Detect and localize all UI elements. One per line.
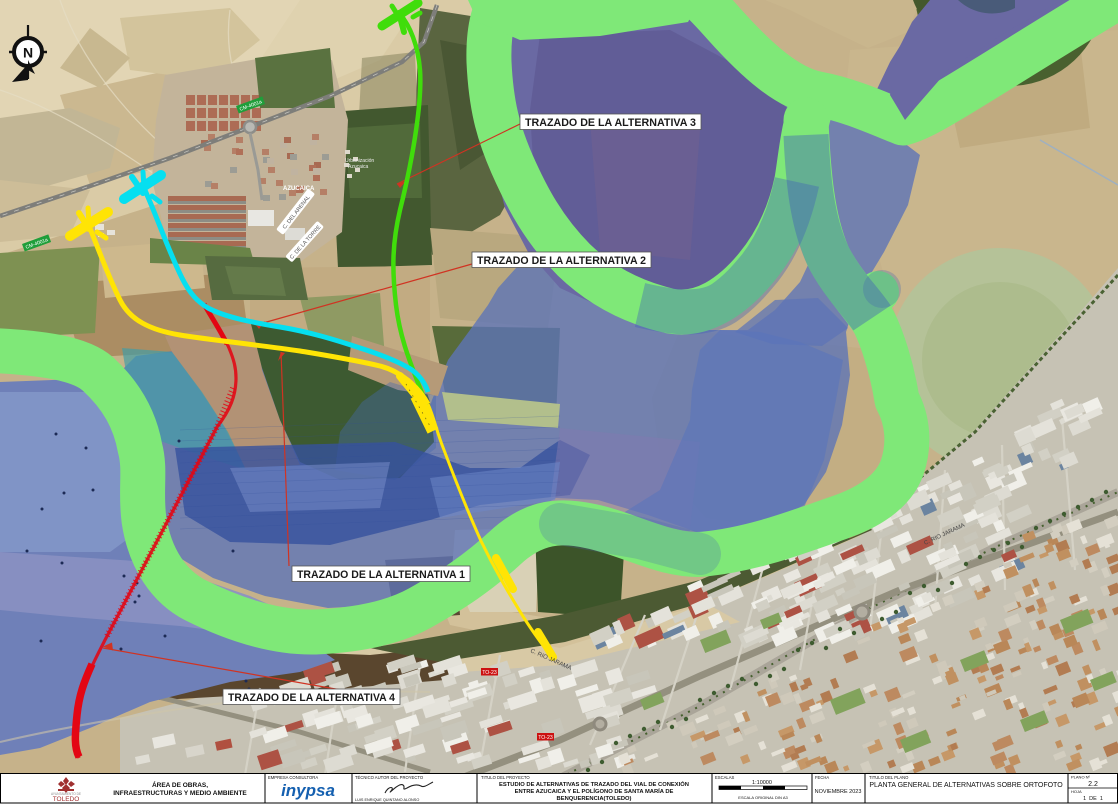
svg-text:BENQUERENCIA(TOLEDO): BENQUERENCIA(TOLEDO) — [557, 796, 632, 802]
svg-text:TITULO DEL PLANO: TITULO DEL PLANO — [869, 775, 909, 780]
svg-text:ESCALA ORIGINAL DIN A3: ESCALA ORIGINAL DIN A3 — [738, 795, 788, 800]
svg-text:PLANTA GENERAL DE ALTERNATIVAS: PLANTA GENERAL DE ALTERNATIVAS SOBRE ORT… — [869, 782, 1063, 789]
svg-text:1:10000: 1:10000 — [752, 780, 772, 786]
svg-text:TOLEDO: TOLEDO — [53, 796, 80, 803]
svg-text:FECHA: FECHA — [815, 775, 829, 780]
svg-text:TO-23: TO-23 — [482, 670, 497, 676]
svg-text:EMPRESA CONSULTORA: EMPRESA CONSULTORA — [268, 775, 318, 780]
svg-text:TRAZADO DE LA ALTERNATIVA 4: TRAZADO DE LA ALTERNATIVA 4 — [228, 692, 396, 704]
svg-text:Azucaica: Azucaica — [348, 164, 369, 170]
svg-text:inypsa: inypsa — [281, 781, 335, 800]
svg-text:TITULO DEL PROYECTO: TITULO DEL PROYECTO — [481, 775, 530, 780]
svg-text:ESCALAS: ESCALAS — [715, 775, 735, 780]
svg-text:LUIS ENRIQUE QUINTANO ALONSO: LUIS ENRIQUE QUINTANO ALONSO — [355, 798, 419, 802]
svg-text:TRAZADO DE LA ALTERNATIVA 2: TRAZADO DE LA ALTERNATIVA 2 — [477, 255, 646, 267]
svg-text:TRAZADO DE LA ALTERNATIVA 1: TRAZADO DE LA ALTERNATIVA 1 — [297, 569, 465, 581]
svg-text:ESTUDIO DE ALTERNATIVAS DE TRA: ESTUDIO DE ALTERNATIVAS DE TRAZADO DEL V… — [499, 780, 689, 788]
svg-text:TO-23: TO-23 — [538, 735, 553, 741]
svg-text:AZUCAICA: AZUCAICA — [283, 186, 315, 192]
svg-text:HOJA: HOJA — [1071, 789, 1082, 794]
svg-text:TÉCNICO AUTOR DEL PROYECTO: TÉCNICO AUTOR DEL PROYECTO — [355, 775, 424, 780]
svg-text:PLANO Nº: PLANO Nº — [1071, 775, 1091, 780]
svg-text:N: N — [23, 45, 33, 61]
svg-text:ÁREA DE OBRAS,: ÁREA DE OBRAS, — [152, 780, 208, 789]
svg-text:ENTRE AZUCAICA Y EL POLÍGONO D: ENTRE AZUCAICA Y EL POLÍGONO DE SANTA MA… — [515, 787, 674, 795]
svg-text:1 DE 1: 1 DE 1 — [1083, 796, 1103, 802]
svg-text:INFRAESTRUCTURAS Y MEDIO AMBIE: INFRAESTRUCTURAS Y MEDIO AMBIENTE — [113, 790, 247, 797]
svg-text:TRAZADO DE LA ALTERNATIVA 3: TRAZADO DE LA ALTERNATIVA 3 — [525, 117, 696, 129]
svg-text:NOVIEMBRE 2023: NOVIEMBRE 2023 — [815, 789, 862, 795]
svg-text:2.2: 2.2 — [1088, 781, 1098, 788]
